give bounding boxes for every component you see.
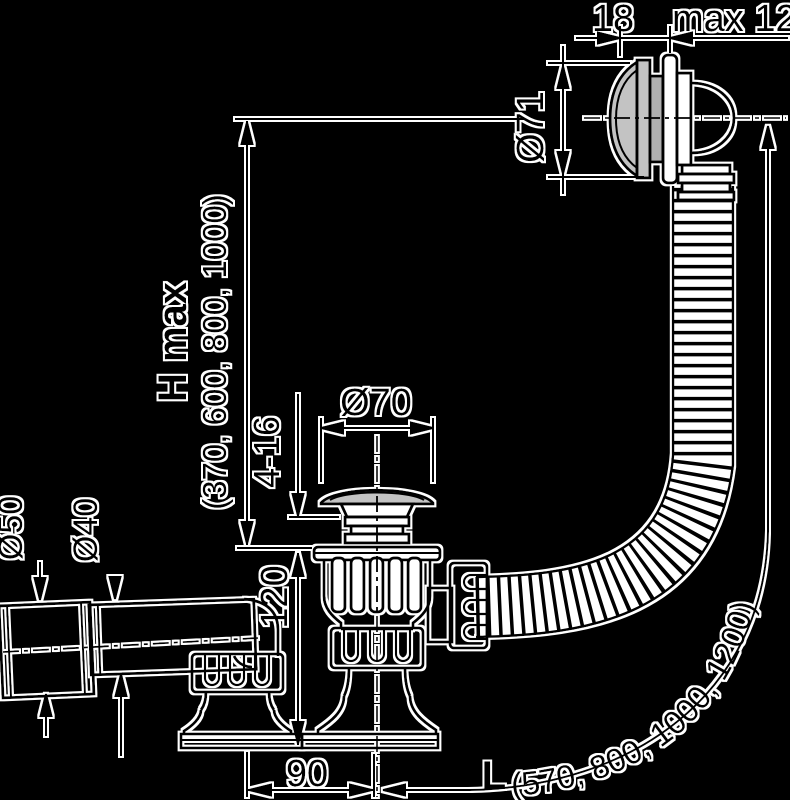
flexible-hose	[476, 186, 733, 637]
label-dim-d70: Ø70	[340, 382, 412, 424]
overflow-head-detail	[584, 55, 786, 200]
pipe-centerline	[3, 638, 258, 652]
overflow-flange	[663, 55, 677, 183]
label-dim-120: 120	[254, 565, 296, 628]
bath-waste-overflow-diagram: 18 max 12 Ø71 H max (370, 600, 800, 1000…	[0, 0, 790, 800]
label-dim-d50: Ø50	[0, 496, 30, 560]
label-dim-d71: Ø71	[510, 91, 552, 163]
inlet-pipe	[0, 599, 258, 698]
label-dim-18: 18	[592, 0, 634, 40]
label-dim-90: 90	[286, 753, 328, 795]
label-h-values: (370, 600, 800, 1000)	[196, 194, 233, 510]
overflow-cap-lens	[610, 62, 637, 176]
label-dim-4-16: 4-16	[246, 416, 287, 488]
drain-assembly	[302, 436, 488, 797]
technical-drawing-canvas: 18 max 12 Ø71 H max (370, 600, 800, 1000…	[0, 0, 790, 800]
label-dim-max12: max 12	[672, 0, 790, 40]
label-dim-length: L	[482, 754, 506, 798]
label-dim-h-max: H max	[151, 282, 195, 402]
label-dim-d40: Ø40	[67, 498, 105, 562]
